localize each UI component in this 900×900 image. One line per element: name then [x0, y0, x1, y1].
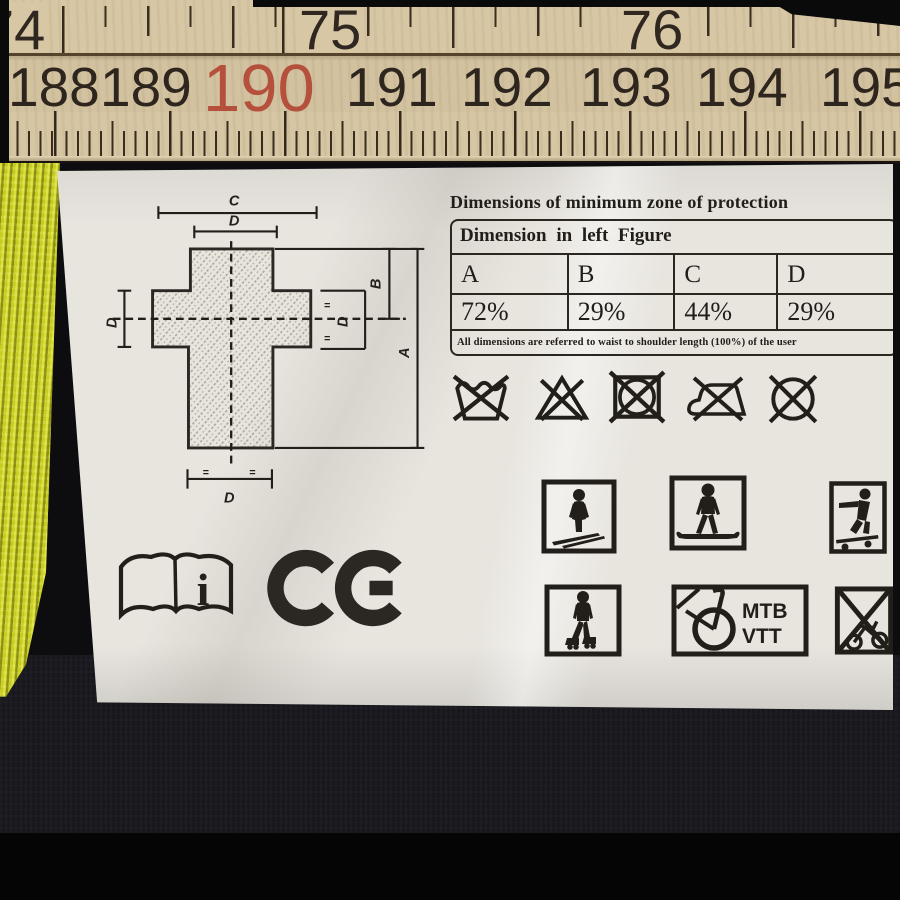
black-fabric: [0, 833, 900, 900]
do-not-tumble-dry-icon: [608, 369, 666, 425]
no-cycling-icon: [833, 585, 895, 656]
dimensions-table: Dimension in left Figure A B C D 72% 29%…: [450, 219, 898, 356]
table-value: 44%: [675, 293, 778, 329]
mtb-label: MTB: [742, 600, 788, 623]
dim-label-d-bottom: D: [224, 490, 235, 506]
do-not-wash-icon: [450, 371, 512, 425]
do-not-dry-clean-icon: [765, 372, 821, 426]
table-value: 72%: [452, 293, 569, 329]
column-header: B: [569, 255, 676, 293]
skiing-icon: [540, 478, 618, 555]
read-instructions-book-icon: i: [112, 543, 240, 631]
ruler-bottom-edge: [0, 156, 900, 163]
garment-label: C D D D B A D = = = = Dimensions of mini…: [57, 164, 893, 710]
cm-number: 195: [820, 60, 900, 115]
do-not-bleach-icon: [533, 371, 591, 425]
skateboarding-icon: [828, 480, 888, 556]
mountain-biking-icon: MTB VTT: [670, 583, 810, 658]
dim-label-c: C: [229, 193, 240, 209]
dim-label-b: B: [369, 279, 385, 290]
info-letter: i: [197, 564, 210, 615]
dim-label-d-left: D: [105, 317, 121, 328]
column-header: A: [452, 255, 569, 293]
inch-number: 75: [296, 2, 364, 58]
cm-number: 192: [461, 60, 553, 115]
do-not-iron-icon: [682, 374, 752, 422]
protection-zone-diagram: C D D D B A D = = = =: [105, 184, 435, 508]
equal-mark: =: [324, 300, 330, 312]
table-header: Dimension in left Figure: [452, 221, 896, 255]
inch-number: 76: [618, 2, 686, 58]
inline-skating-icon: [543, 583, 623, 658]
cm-number: 189: [100, 60, 192, 115]
cm-number: 191: [346, 60, 438, 115]
table-value: 29%: [569, 293, 676, 329]
vtt-label: VTT: [742, 625, 782, 648]
equal-mark: =: [324, 333, 330, 345]
equal-mark: =: [203, 467, 209, 479]
inch-ticks: [0, 6, 900, 27]
table-value: 29%: [778, 293, 896, 329]
table-title: Dimensions of minimum zone of protection: [450, 192, 898, 213]
dim-label-d-right: D: [336, 316, 352, 327]
cm-number: 188: [8, 60, 100, 115]
cm-number-highlighted: 190: [203, 55, 315, 122]
table-footnote: All dimensions are referred to waist to …: [452, 329, 896, 355]
hi-vis-yellow-fabric: [0, 162, 62, 702]
cm-number: 193: [580, 60, 672, 115]
wooden-ruler: 74 75 76 188 189 190 191 192 193 194 195: [0, 0, 900, 163]
dim-label-a: A: [397, 348, 413, 360]
equal-mark: =: [249, 467, 255, 479]
millimeter-ticks: [0, 131, 900, 157]
photo-garment-label-scene: C D D D B A D = = = = Dimensions of mini…: [0, 0, 900, 900]
snowboarding-icon: [668, 474, 748, 552]
ce-mark-icon: [267, 541, 412, 636]
column-header: C: [675, 255, 778, 293]
dim-label-d-top: D: [229, 214, 240, 230]
column-header: D: [778, 255, 896, 293]
cm-number: 194: [696, 60, 788, 115]
